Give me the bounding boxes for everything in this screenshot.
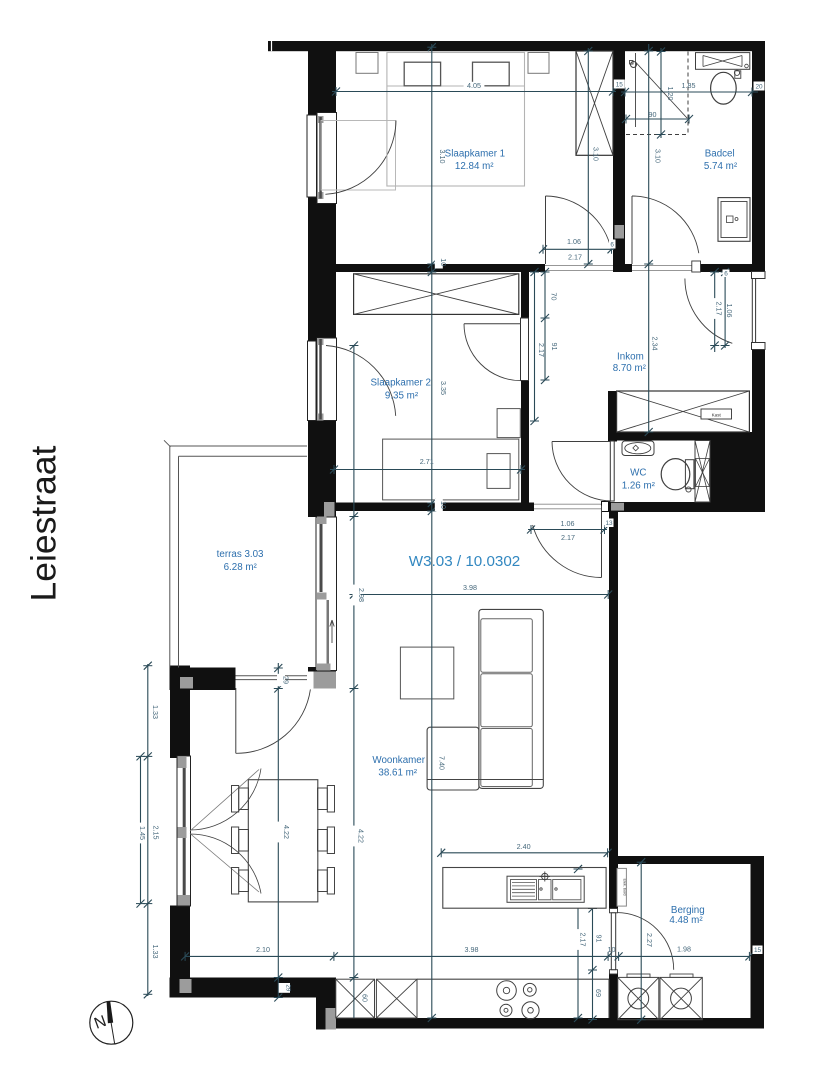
svg-text:2.10: 2.10 xyxy=(256,945,270,954)
svg-text:Woonkamer: Woonkamer xyxy=(372,755,425,766)
svg-text:1.33: 1.33 xyxy=(151,945,160,959)
svg-text:4.05: 4.05 xyxy=(467,81,481,90)
svg-text:38.61 m²: 38.61 m² xyxy=(378,767,417,778)
svg-text:2.17: 2.17 xyxy=(568,253,582,262)
svg-text:W3.03 / 10.0302: W3.03 / 10.0302 xyxy=(409,553,520,570)
svg-text:4.22: 4.22 xyxy=(357,829,366,843)
svg-text:29: 29 xyxy=(285,984,292,992)
svg-text:1.20: 1.20 xyxy=(666,87,675,101)
svg-text:2.15: 2.15 xyxy=(152,826,161,840)
svg-text:12.84 m²: 12.84 m² xyxy=(455,161,494,172)
svg-text:13: 13 xyxy=(605,520,613,527)
svg-text:6: 6 xyxy=(724,271,728,278)
svg-text:3.98: 3.98 xyxy=(463,583,477,592)
svg-text:10: 10 xyxy=(608,945,616,954)
svg-text:1.85: 1.85 xyxy=(682,81,696,90)
svg-text:60: 60 xyxy=(360,994,369,1002)
svg-text:6: 6 xyxy=(610,241,614,248)
svg-text:1.33: 1.33 xyxy=(151,705,160,719)
svg-text:WC: WC xyxy=(630,467,646,478)
svg-text:91: 91 xyxy=(595,935,604,943)
svg-text:15: 15 xyxy=(616,81,624,88)
svg-text:Slaapkamer 1: Slaapkamer 1 xyxy=(445,149,505,160)
svg-text:Kast: Kast xyxy=(712,413,722,418)
svg-text:1.06: 1.06 xyxy=(567,237,581,246)
svg-text:10: 10 xyxy=(439,501,448,509)
svg-text:2.17: 2.17 xyxy=(561,533,575,542)
svg-text:9.35 m²: 9.35 m² xyxy=(385,391,419,402)
svg-text:29: 29 xyxy=(281,676,290,684)
svg-text:terras 3.03: terras 3.03 xyxy=(217,549,264,560)
svg-text:2.17: 2.17 xyxy=(715,302,724,316)
svg-text:6.28 m²: 6.28 m² xyxy=(224,562,258,573)
svg-text:1.98: 1.98 xyxy=(677,945,691,954)
svg-text:1.06: 1.06 xyxy=(725,304,734,318)
svg-text:1.26 m²: 1.26 m² xyxy=(622,481,656,492)
svg-text:90: 90 xyxy=(649,110,657,119)
svg-text:2.71: 2.71 xyxy=(420,457,434,466)
svg-text:2.17: 2.17 xyxy=(579,933,588,947)
svg-text:70: 70 xyxy=(550,293,559,301)
svg-text:8.70 m²: 8.70 m² xyxy=(613,363,647,374)
svg-text:1.06: 1.06 xyxy=(561,519,575,528)
svg-text:2.98: 2.98 xyxy=(357,588,366,602)
svg-text:15: 15 xyxy=(754,947,762,954)
svg-text:Leiestraat: Leiestraat xyxy=(24,445,64,601)
svg-text:3.10: 3.10 xyxy=(654,149,663,163)
svg-text:7.40: 7.40 xyxy=(437,756,446,770)
svg-text:3.98: 3.98 xyxy=(465,945,479,954)
svg-text:Slaapkamer 2: Slaapkamer 2 xyxy=(370,378,430,389)
svg-text:Elek. bord: Elek. bord xyxy=(623,878,627,895)
svg-text:3.10: 3.10 xyxy=(592,147,601,161)
svg-text:10: 10 xyxy=(439,258,448,266)
svg-text:69: 69 xyxy=(594,989,603,997)
svg-text:4.22: 4.22 xyxy=(282,825,291,839)
svg-text:5.74 m²: 5.74 m² xyxy=(704,161,738,172)
svg-text:Inkom: Inkom xyxy=(617,351,644,362)
svg-text:2.34: 2.34 xyxy=(650,337,659,351)
svg-text:Badcel: Badcel xyxy=(705,149,735,160)
svg-text:1.45: 1.45 xyxy=(138,826,147,840)
svg-text:2.27: 2.27 xyxy=(645,933,654,947)
svg-text:3.35: 3.35 xyxy=(439,381,448,395)
svg-text:4.48 m²: 4.48 m² xyxy=(669,915,703,926)
svg-text:20: 20 xyxy=(755,83,763,90)
svg-text:91: 91 xyxy=(550,343,559,351)
svg-text:2.40: 2.40 xyxy=(517,842,531,851)
